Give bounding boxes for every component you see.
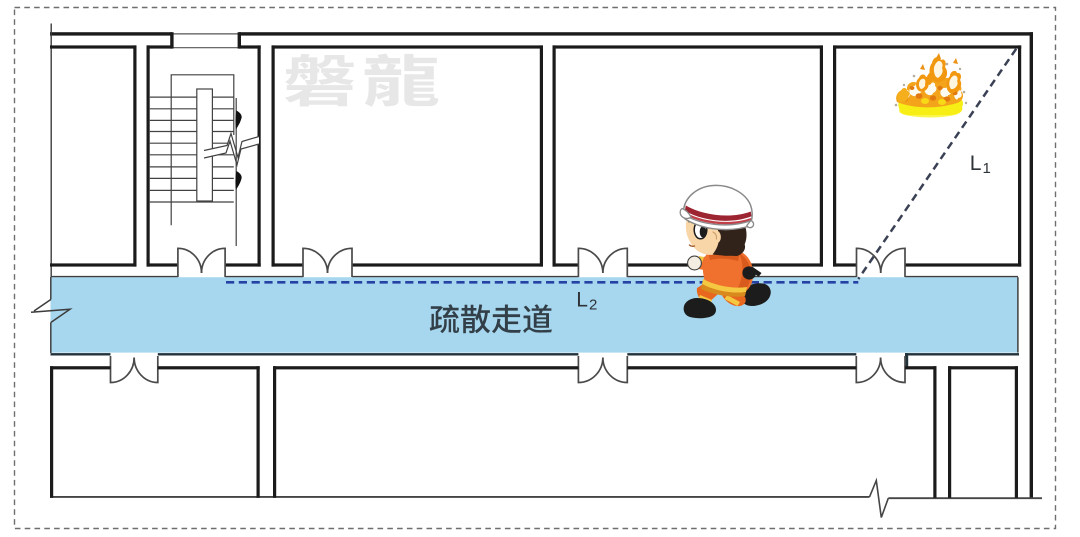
svg-text:L: L [970, 152, 982, 175]
svg-text:1: 1 [983, 160, 991, 177]
svg-text:L: L [576, 289, 588, 312]
svg-text:2: 2 [589, 297, 597, 314]
